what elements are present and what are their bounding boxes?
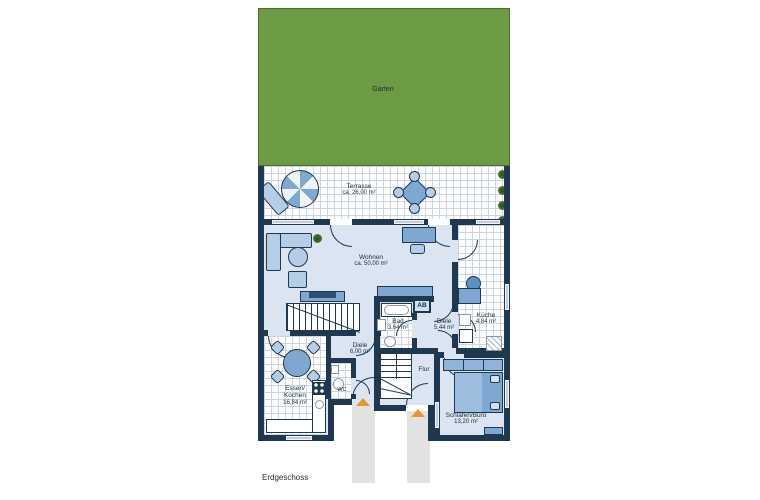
plan-title: Erdgeschoss bbox=[262, 473, 308, 482]
entrance-arrow-icon bbox=[356, 398, 370, 406]
bath-area: 3,64 m² bbox=[384, 325, 412, 332]
dining-name-2: Kochen bbox=[271, 392, 319, 399]
wall-notch-left bbox=[328, 399, 334, 441]
plan-title-text: Erdgeschoss bbox=[262, 473, 308, 482]
living-room-name: Wohnen bbox=[340, 254, 402, 261]
window bbox=[505, 380, 509, 408]
wall-bottom-right bbox=[428, 435, 510, 441]
bedroom-name: Schlafen/Büro bbox=[432, 412, 500, 419]
floor-plan: Garten Terrasse ca. 26,00 m² bbox=[0, 0, 760, 500]
terrace-chair bbox=[409, 171, 420, 182]
window bbox=[272, 220, 314, 224]
coffee-table bbox=[288, 247, 308, 267]
terrace-chair bbox=[393, 187, 404, 198]
garden-label: Garten bbox=[343, 86, 423, 94]
bed-pillow bbox=[490, 375, 500, 383]
wc-sink bbox=[331, 365, 339, 374]
hall1-area: 5,44 m² bbox=[428, 325, 460, 332]
bedroom-area: 13,20 m² bbox=[432, 419, 500, 426]
entry-path-left bbox=[352, 405, 375, 483]
terrace-area: ca. 26,00 m² bbox=[328, 190, 390, 197]
corridor-name: Flur bbox=[418, 366, 429, 373]
terrace-chair bbox=[425, 187, 436, 198]
bath-label: Bad 3,64 m² bbox=[384, 318, 412, 332]
bed-duvet bbox=[455, 373, 482, 412]
wall-kueche-west bbox=[452, 225, 458, 240]
armchair bbox=[288, 271, 307, 288]
wall-entrance1 bbox=[331, 399, 352, 405]
counter bbox=[377, 286, 433, 297]
hall2-name: Diele bbox=[342, 342, 378, 349]
wall-bad-east bbox=[412, 313, 417, 320]
window bbox=[505, 284, 509, 310]
entrance-arrow-icon bbox=[411, 409, 425, 417]
stair-rail bbox=[396, 353, 397, 379]
dining-label: Essen/ Kochen 16,84 m² bbox=[271, 385, 319, 407]
wardrobe bbox=[443, 359, 503, 371]
desk-chair bbox=[410, 244, 425, 254]
bedroom-label: Schlafen/Büro 13,20 m² bbox=[432, 412, 500, 426]
wall-entrance2 bbox=[374, 405, 406, 411]
hall1-name: Diele bbox=[428, 318, 460, 325]
window bbox=[476, 220, 500, 224]
dining-table bbox=[283, 349, 311, 377]
hall1-label: Diele 5,44 m² bbox=[428, 318, 460, 332]
kitchen-label: Küche 4,84 m² bbox=[468, 312, 504, 326]
dining-name-1: Essen/ bbox=[271, 385, 319, 392]
kitchen-washer bbox=[486, 336, 502, 351]
living-room-area: ca. 50,00 m² bbox=[340, 261, 402, 268]
ab-box: AB bbox=[413, 299, 431, 313]
tv-screen bbox=[309, 292, 336, 298]
terrace-label: Terrasse ca. 26,00 m² bbox=[328, 183, 390, 197]
dining-area: 16,84 m² bbox=[271, 400, 319, 407]
garden-label-text: Garten bbox=[372, 86, 393, 93]
sofa bbox=[266, 233, 281, 271]
terrace-chair bbox=[409, 203, 420, 214]
corridor-label: Flur bbox=[413, 366, 435, 373]
wall-left bbox=[258, 166, 264, 441]
kitchen-area: 4,84 m² bbox=[468, 319, 504, 326]
bath-name: Bad bbox=[384, 318, 412, 325]
wc-name: WC bbox=[337, 387, 346, 393]
wall-wohnen-south bbox=[258, 330, 268, 336]
wall-bad-east bbox=[412, 338, 417, 348]
wall-schlafen-north bbox=[464, 352, 504, 358]
window bbox=[286, 436, 312, 440]
wc-label: WC bbox=[334, 387, 350, 393]
wall-wc-east bbox=[351, 363, 356, 378]
bed-pillow bbox=[490, 402, 500, 410]
kitchen-unit bbox=[458, 288, 481, 304]
terrace-name: Terrasse bbox=[328, 183, 390, 190]
living-room-label: Wohnen ca. 50,00 m² bbox=[340, 254, 402, 268]
ab-label: AB bbox=[417, 302, 426, 309]
hall2-label: Diele 6,00 m² bbox=[342, 342, 378, 356]
kitchen-oven bbox=[459, 329, 473, 343]
kitchen-name: Küche bbox=[468, 312, 504, 319]
hall2-area: 6,00 m² bbox=[342, 349, 378, 356]
desk bbox=[402, 227, 436, 243]
dresser bbox=[484, 427, 503, 435]
plant-icon bbox=[313, 234, 322, 243]
bath-toilet bbox=[384, 336, 396, 347]
entry-path-right bbox=[407, 411, 430, 483]
bathtub-basin bbox=[384, 305, 409, 315]
window bbox=[394, 220, 424, 224]
